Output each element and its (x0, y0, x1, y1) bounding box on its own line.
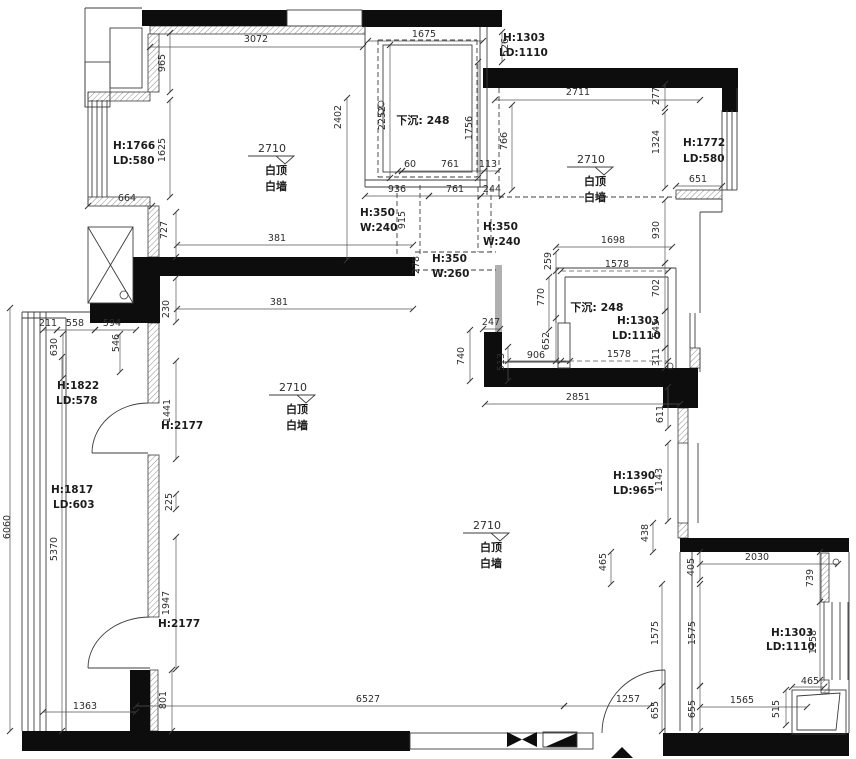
dim-label: 60 (404, 159, 416, 170)
dim-label: 906 (527, 350, 545, 361)
dim-label: 6527 (356, 694, 380, 705)
dim-label: 438 (640, 524, 651, 542)
solid-wall (483, 68, 738, 88)
door-arc (88, 617, 150, 668)
marker-symbol (545, 733, 577, 747)
marker-symbol (507, 732, 522, 747)
dim-label: 651 (689, 174, 707, 185)
dim-label: 247 (482, 317, 500, 328)
dimension-lines (7, 29, 841, 734)
window-tag: LD:578 (56, 395, 98, 407)
dim-label: 244 (483, 184, 501, 195)
ceiling-finish-label: 白顶 (584, 174, 606, 188)
floor-plan: 3072167527116516646076111393676124438138… (0, 0, 856, 759)
dim-label: 1578 (607, 349, 631, 360)
window-tag: W:260 (432, 268, 469, 280)
dim-label: 611 (655, 405, 666, 423)
dim-label: 515 (771, 700, 782, 718)
window-tag: H:1303 (771, 627, 813, 639)
dim-label: 2252 (377, 106, 388, 130)
ceiling-finish-label: 白顶 (286, 402, 308, 416)
dim-label: 1578 (605, 259, 629, 270)
dim-label: 1441 (162, 399, 173, 423)
dim-label: 1756 (464, 116, 475, 140)
dim-label: 1698 (601, 235, 625, 246)
dim-label: 5370 (49, 537, 60, 561)
dim-label: 702 (651, 279, 662, 297)
elevation-value: 2710 (258, 142, 286, 155)
dim-label: 930 (651, 221, 662, 239)
dim-label: 225 (164, 493, 175, 511)
dim-label: 405 (686, 558, 697, 576)
dim-label: 630 (49, 338, 60, 356)
elevation-triangle-icon (491, 533, 509, 541)
marker-symbol (522, 732, 537, 747)
sunken-note: 下沉: 248 (396, 113, 449, 127)
hatched-wall (150, 26, 365, 34)
dim-label: 664 (118, 193, 136, 204)
window-tag: LD:580 (113, 155, 155, 167)
solid-wall (484, 368, 680, 387)
elevation-value: 2710 (577, 153, 605, 166)
window-tag: H:350 (360, 207, 395, 219)
dim-label: 513 (496, 353, 507, 371)
dim-label: 801 (158, 691, 169, 709)
outline-box (287, 10, 362, 26)
solid-wall (722, 88, 738, 112)
hatched-wall (821, 553, 829, 602)
outline-box (383, 45, 472, 172)
window-tag: H:2177 (158, 618, 200, 630)
solid-wall (663, 733, 849, 756)
elevation-triangle-icon (595, 167, 613, 175)
dim-label: 381 (270, 297, 288, 308)
dim-label: 761 (446, 184, 464, 195)
window-tag: LD:603 (53, 499, 95, 511)
door-swings (88, 403, 665, 733)
dim-label: 1947 (161, 591, 172, 615)
plan-symbols (120, 101, 840, 758)
hatched-wall (150, 670, 158, 731)
window-tag: LD:580 (683, 153, 725, 165)
solid-wall (362, 10, 502, 27)
wall-finish-label: 白墙 (480, 556, 502, 570)
hatched-wall (678, 408, 688, 443)
dim-label: 230 (161, 300, 172, 318)
hatched-wall (148, 323, 159, 403)
dim-label: 381 (268, 233, 286, 244)
dim-label: 1158 (808, 630, 819, 654)
dim-label: 915 (397, 211, 408, 229)
window-tag: H:350 (483, 221, 518, 233)
detail-circle (120, 291, 128, 299)
dim-label: 546 (111, 334, 122, 352)
dim-label: 545 (651, 320, 662, 338)
hatched-wall (676, 190, 722, 199)
dim-label: 2851 (566, 392, 590, 403)
window-tag: H:1772 (683, 137, 725, 149)
dim-label: 1363 (73, 701, 97, 712)
ceiling-finish-label: 白顶 (480, 540, 502, 554)
window-tag: H:1390 (613, 470, 655, 482)
dim-label: 2030 (745, 552, 769, 563)
dim-label: 594 (103, 318, 121, 329)
dim-label: 2402 (333, 105, 344, 129)
dim-label: 526 (500, 38, 511, 56)
elevation-triangle-icon (276, 156, 294, 164)
window-tag: W:240 (483, 236, 520, 248)
dim-label: 1257 (616, 694, 640, 705)
window-tag: H:1817 (51, 484, 93, 496)
solid-wall (22, 731, 410, 751)
elevation-triangle-icon (297, 395, 315, 403)
dim-label: 259 (543, 252, 554, 270)
floor-plan-canvas: 3072167527116516646076111393676124438138… (0, 0, 856, 759)
dim-label: 936 (388, 184, 406, 195)
dim-label: 965 (157, 54, 168, 72)
dim-label: 1675 (412, 29, 436, 40)
dim-label: 1143 (654, 468, 665, 492)
hatched-wall (148, 455, 159, 617)
sunken-note: 下沉: 248 (570, 300, 623, 314)
dim-label: 1565 (730, 695, 754, 706)
dim-label: 655 (650, 701, 661, 719)
dim-label: 655 (687, 700, 698, 718)
solid-wall (133, 276, 160, 323)
window-tag: W:240 (360, 222, 397, 234)
dim-label: 6060 (2, 515, 13, 539)
dim-label: 1575 (650, 621, 661, 645)
dim-label: 558 (66, 318, 84, 329)
dim-label: 2711 (566, 87, 590, 98)
hatched-wall (678, 523, 688, 538)
dim-label: 211 (39, 318, 57, 329)
elevation-value: 2710 (279, 381, 307, 394)
dim-label: 465 (598, 553, 609, 571)
dim-label: 113 (479, 159, 497, 170)
window-tag: H:1766 (113, 140, 155, 152)
wall-finish-label: 白墙 (286, 418, 308, 432)
dim-label: 277 (651, 87, 662, 105)
dim-label: 761 (441, 159, 459, 170)
door-arc (92, 403, 148, 453)
elevation-marks: 下沉: 248下沉: 2482710白顶白墙2710白顶白墙2710白顶白墙27… (248, 113, 624, 570)
dim-label: 739 (805, 569, 816, 587)
marker-symbol (611, 747, 633, 758)
hatched-wall (690, 348, 700, 368)
dim-label: 3072 (244, 34, 268, 45)
elevation-value: 2710 (473, 519, 501, 532)
dim-label: 1625 (157, 138, 168, 162)
dim-label: 766 (499, 132, 510, 150)
dim-label: 1324 (651, 130, 662, 154)
window-tag: H:350 (432, 253, 467, 265)
window-tag: LD:965 (613, 485, 655, 497)
dim-label: 1575 (687, 621, 698, 645)
dim-label: 727 (159, 221, 170, 239)
hatched-wall (148, 206, 159, 257)
appliance-outline (797, 693, 840, 730)
window-tag: H:1822 (57, 380, 99, 392)
ceiling-finish-label: 白顶 (265, 163, 287, 177)
outline-box (110, 28, 142, 88)
solid-wall (133, 257, 415, 276)
dim-label: 278 (411, 256, 422, 274)
solid-wall (142, 10, 287, 26)
solid-wall (130, 670, 150, 731)
dim-label: 311 (651, 348, 662, 366)
hatched-wall (88, 92, 150, 101)
dim-label: 465 (801, 676, 819, 687)
dim-label: 652 (541, 332, 552, 350)
dim-label: 740 (456, 347, 467, 365)
wall-finish-label: 白墙 (265, 179, 287, 193)
wall-finish-label: 白墙 (584, 190, 606, 204)
dim-label: 770 (536, 288, 547, 306)
solid-wall (680, 538, 849, 552)
